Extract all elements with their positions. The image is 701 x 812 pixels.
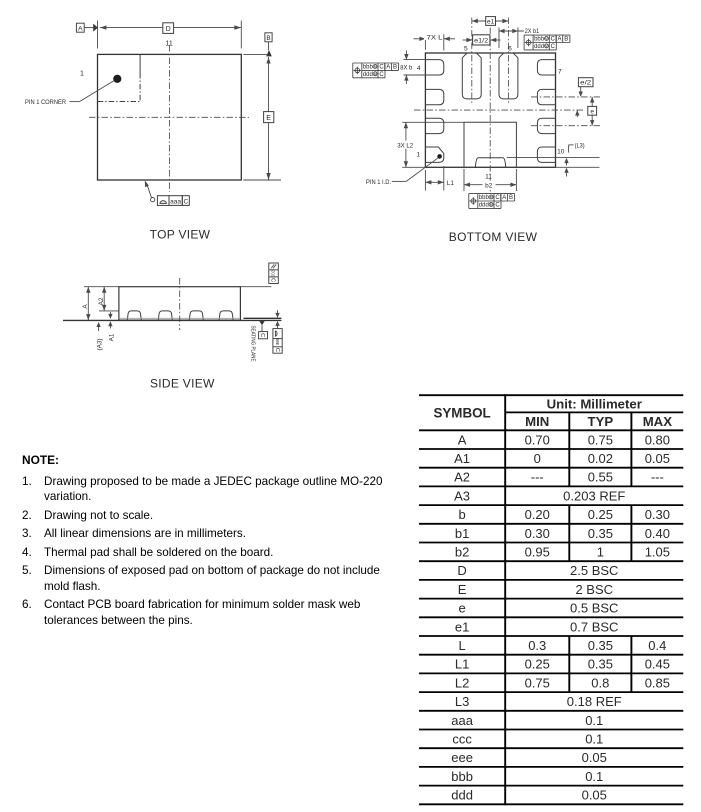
svg-text:M: M [545,36,548,41]
svg-text:0.75: 0.75 [588,432,613,447]
svg-text:A: A [458,432,467,447]
svg-text:11: 11 [166,40,173,47]
svg-text:0.35: 0.35 [588,526,613,541]
svg-text:0.203 REF: 0.203 REF [563,488,625,503]
svg-text:PIN 1 I.D.: PIN 1 I.D. [366,179,391,186]
svg-text:7: 7 [558,68,562,75]
svg-text:M: M [545,44,548,49]
svg-text:SEATING PLANE: SEATING PLANE [250,326,256,362]
svg-text:eee: eee [451,750,473,765]
svg-text:0.55: 0.55 [588,470,613,485]
svg-text:aaa: aaa [170,198,182,205]
svg-text:5: 5 [464,45,468,52]
svg-text:M: M [490,195,493,200]
svg-text:ddd: ddd [363,72,373,78]
svg-text:M: M [374,64,377,69]
svg-text:L3: L3 [455,694,469,709]
svg-text:B: B [564,37,568,43]
svg-text:A: A [557,37,561,43]
svg-text:2.5 BSC: 2.5 BSC [570,563,618,578]
svg-text:PIN 1 CORNER: PIN 1 CORNER [25,99,66,106]
svg-text:SIDE VIEW: SIDE VIEW [150,377,215,391]
svg-text:A1: A1 [108,333,115,341]
svg-text:b1: b1 [455,526,469,541]
svg-text:0.80: 0.80 [645,432,670,447]
svg-text:A: A [502,195,506,201]
svg-text:(L3): (L3) [575,142,585,149]
svg-text:e: e [458,601,465,616]
svg-text:0.75: 0.75 [525,675,550,690]
svg-text:L1: L1 [455,657,469,672]
svg-text:D: D [166,26,171,33]
svg-text:L2: L2 [455,675,469,690]
svg-text:2 BSC: 2 BSC [575,582,613,597]
svg-text:A2: A2 [98,297,105,305]
svg-text:(A3): (A3) [96,338,103,350]
svg-text:A1: A1 [454,451,470,466]
svg-text:0.45: 0.45 [645,657,670,672]
svg-text:E: E [266,115,271,122]
svg-text:bbb: bbb [363,65,374,71]
svg-text:C: C [551,37,556,43]
svg-text:0.70: 0.70 [525,432,550,447]
svg-text:MIN: MIN [525,414,549,429]
svg-text:L1: L1 [447,180,455,187]
svg-text:ddd: ddd [479,203,489,209]
svg-text:ccc: ccc [452,731,472,746]
svg-text:C: C [259,333,265,337]
svg-text:0.8: 0.8 [591,675,609,690]
svg-text:eee: eee [274,338,280,345]
svg-text:0.95: 0.95 [525,544,550,559]
svg-text:D: D [457,563,466,578]
svg-text:1: 1 [597,544,604,559]
svg-text:---: --- [651,470,664,485]
svg-text:0.3: 0.3 [528,638,546,653]
svg-text:0.40: 0.40 [645,526,670,541]
svg-text:e1: e1 [455,619,469,634]
svg-text:C: C [184,198,189,205]
svg-text:L: L [458,638,465,653]
svg-text:BOTTOM VIEW: BOTTOM VIEW [449,230,538,244]
svg-text:Unit: Millimeter: Unit: Millimeter [547,396,642,411]
svg-text:0.18 REF: 0.18 REF [567,694,622,709]
svg-text:ddd: ddd [534,44,544,50]
svg-text:bbb: bbb [479,195,490,201]
svg-text:0.02: 0.02 [588,451,613,466]
svg-text:0.30: 0.30 [645,507,670,522]
svg-text:0.7 BSC: 0.7 BSC [570,619,618,634]
svg-text:A: A [82,304,89,309]
svg-text:6: 6 [508,45,512,52]
svg-text:0.25: 0.25 [525,657,550,672]
svg-text:1: 1 [416,151,420,158]
svg-text:A2: A2 [454,470,470,485]
svg-text:1.05: 1.05 [645,544,670,559]
svg-text:TYP: TYP [588,414,614,429]
svg-text:0.85: 0.85 [645,675,670,690]
svg-text:0.5 BSC: 0.5 BSC [570,601,618,616]
svg-text:0.05: 0.05 [582,788,607,803]
svg-text:M: M [490,202,493,207]
svg-text:0.35: 0.35 [588,657,613,672]
svg-text:0.35: 0.35 [588,638,613,653]
svg-text:bbb: bbb [451,769,473,784]
svg-text:0.30: 0.30 [525,526,550,541]
svg-text:11: 11 [485,173,492,180]
svg-text:---: --- [531,470,544,485]
svg-text:7X L: 7X L [427,34,444,41]
svg-text:e1: e1 [487,19,495,26]
svg-text:B: B [393,65,397,71]
svg-text:C: C [551,44,556,50]
svg-text:C: C [495,195,500,201]
svg-text:TOP VIEW: TOP VIEW [150,228,211,242]
svg-text:e/2: e/2 [580,80,592,87]
svg-text:C: C [379,72,384,78]
svg-text:A: A [386,65,390,71]
svg-text:0.05: 0.05 [645,451,670,466]
svg-text:A3: A3 [454,488,470,503]
svg-text:C: C [495,203,500,209]
svg-text:4: 4 [417,65,421,72]
svg-text:M: M [374,72,377,77]
svg-text:b: b [458,507,465,522]
svg-text:1: 1 [80,71,84,78]
svg-text:b2: b2 [455,544,469,559]
svg-text:3X L2: 3X L2 [397,143,413,150]
svg-text:A: A [78,25,83,32]
svg-text:10: 10 [557,149,565,156]
svg-text:0.1: 0.1 [585,769,603,784]
svg-text:e: e [590,108,594,115]
svg-text:0.1: 0.1 [585,713,603,728]
svg-text:C: C [270,278,276,282]
svg-text:0.25: 0.25 [588,507,613,522]
svg-text:0.05: 0.05 [582,750,607,765]
svg-text:B: B [509,195,513,201]
svg-text:ddd: ddd [451,788,473,803]
svg-text:aaa: aaa [451,713,473,728]
svg-text:MAX: MAX [643,414,673,429]
svg-text:e1/2: e1/2 [474,37,488,44]
svg-text:bbb: bbb [534,37,545,43]
svg-text:C: C [274,348,280,352]
svg-text:0.20: 0.20 [525,507,550,522]
svg-text:0.1: 0.1 [585,731,603,746]
svg-text:8X b: 8X b [400,65,412,72]
svg-text:C: C [379,65,384,71]
svg-text:ccc: ccc [270,270,276,277]
svg-text:SYMBOL: SYMBOL [433,405,490,420]
svg-text:E: E [458,582,467,597]
svg-text:B: B [266,35,270,42]
svg-text:0.4: 0.4 [648,638,666,653]
svg-text:0: 0 [534,451,541,466]
svg-text:b2: b2 [485,183,493,190]
svg-text:2X b1: 2X b1 [525,28,540,35]
